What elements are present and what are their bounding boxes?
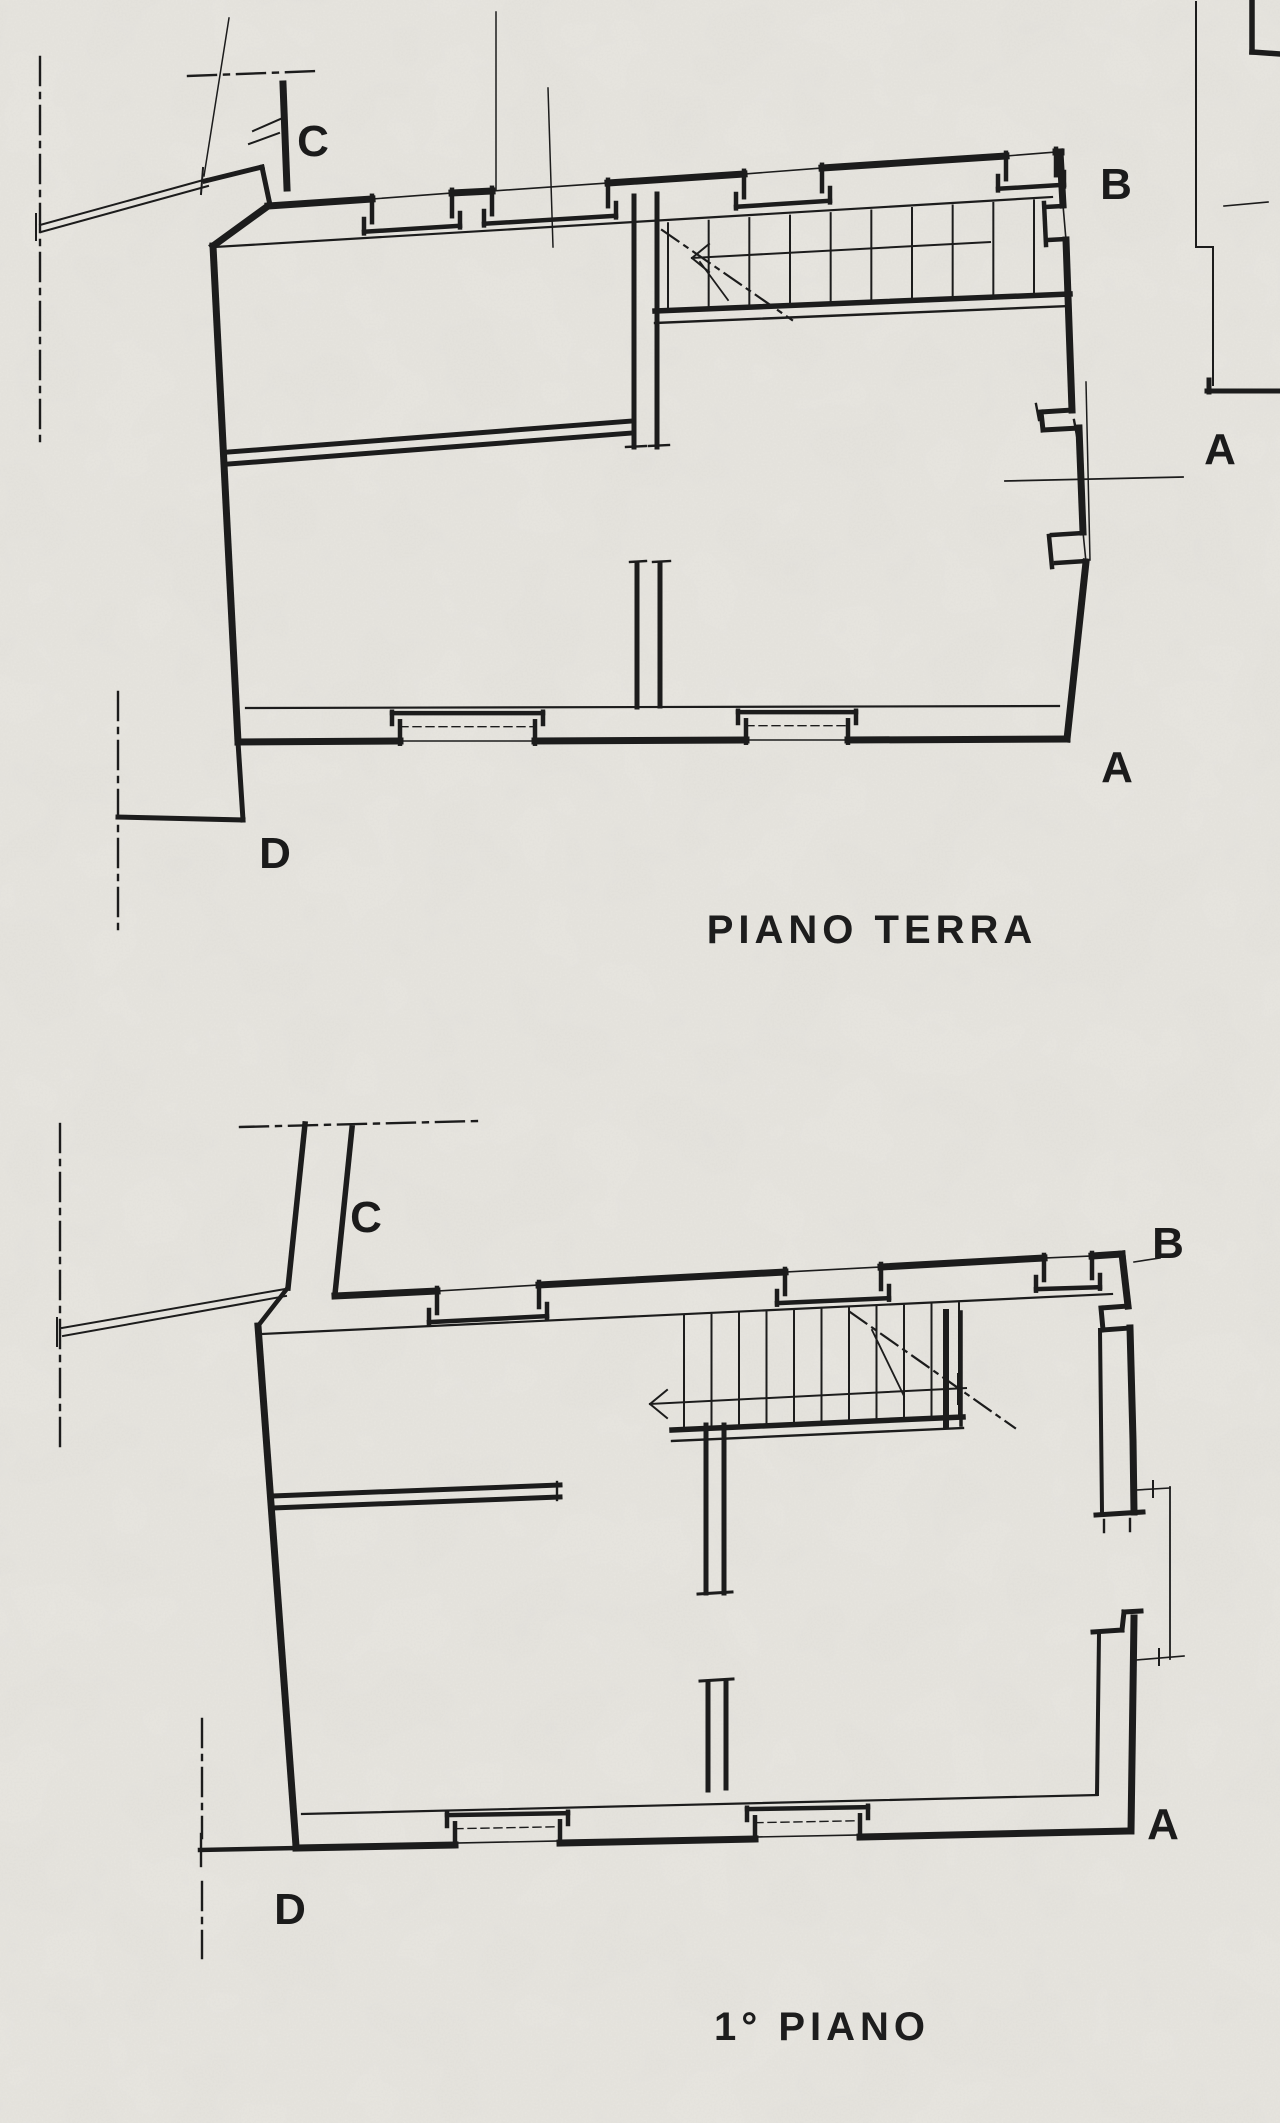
gf-section-label-c: C — [297, 120, 329, 164]
floor-plan-drawing — [0, 0, 1280, 2123]
scanned-floor-plan-sheet: C B A A D PIANO TERRA C B A D 1° PIANO — [0, 0, 1280, 2123]
gf-plan-title: PIANO TERRA — [707, 910, 1038, 950]
gf-section-label-b: B — [1100, 163, 1132, 207]
gf-section-label-a-side: A — [1204, 428, 1236, 472]
ff-section-label-c: C — [350, 1196, 382, 1240]
paper-blotch-texture — [0, 0, 1280, 2123]
gf-section-label-d: D — [259, 832, 291, 876]
ff-section-label-d: D — [274, 1888, 306, 1932]
ff-section-label-a: A — [1147, 1803, 1179, 1847]
gf-section-label-a-corner: A — [1101, 746, 1133, 790]
ff-bottom-boundary-extension — [200, 1848, 296, 1850]
ff-section-label-b: B — [1152, 1222, 1184, 1266]
ff-plan-title: 1° PIANO — [714, 2007, 930, 2047]
